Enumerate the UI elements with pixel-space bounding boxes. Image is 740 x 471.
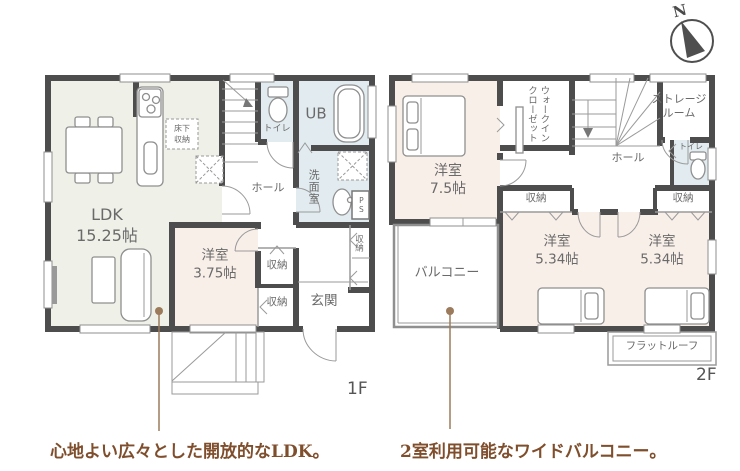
toilet-1f-icon bbox=[268, 87, 288, 122]
balcony-callout-line bbox=[446, 307, 454, 429]
bathtub-icon bbox=[334, 85, 364, 142]
toilet-2f-icon bbox=[690, 152, 706, 179]
utility-box-ldk bbox=[196, 156, 223, 183]
pipe-space-box bbox=[352, 191, 369, 219]
bed-right-icon bbox=[645, 288, 709, 324]
dining-table-icon bbox=[66, 117, 122, 183]
balcony-outline bbox=[394, 225, 498, 327]
underfloor-storage-box bbox=[166, 119, 198, 149]
compass-icon bbox=[671, 20, 713, 62]
kitchen-icon bbox=[137, 87, 163, 186]
flat-roof-outline bbox=[608, 332, 716, 365]
floor1-plan bbox=[44, 74, 376, 394]
stairs-2f-icon bbox=[572, 78, 660, 146]
tv-icon bbox=[52, 266, 57, 304]
floorplan-canvas: LDK 15.25帖 洋室 3.75帖 床下 収納 トイレ UB 洗面室 ホール… bbox=[0, 0, 740, 471]
porch-1f bbox=[172, 332, 264, 394]
stairs-1f-icon bbox=[222, 80, 258, 162]
utility-box-washroom bbox=[338, 152, 367, 180]
wic-door-panel bbox=[516, 107, 523, 153]
floorplan-graphics bbox=[0, 0, 740, 471]
floor2-plan bbox=[388, 74, 716, 365]
bed-center-icon bbox=[538, 288, 604, 324]
double-bed-icon bbox=[403, 96, 465, 156]
